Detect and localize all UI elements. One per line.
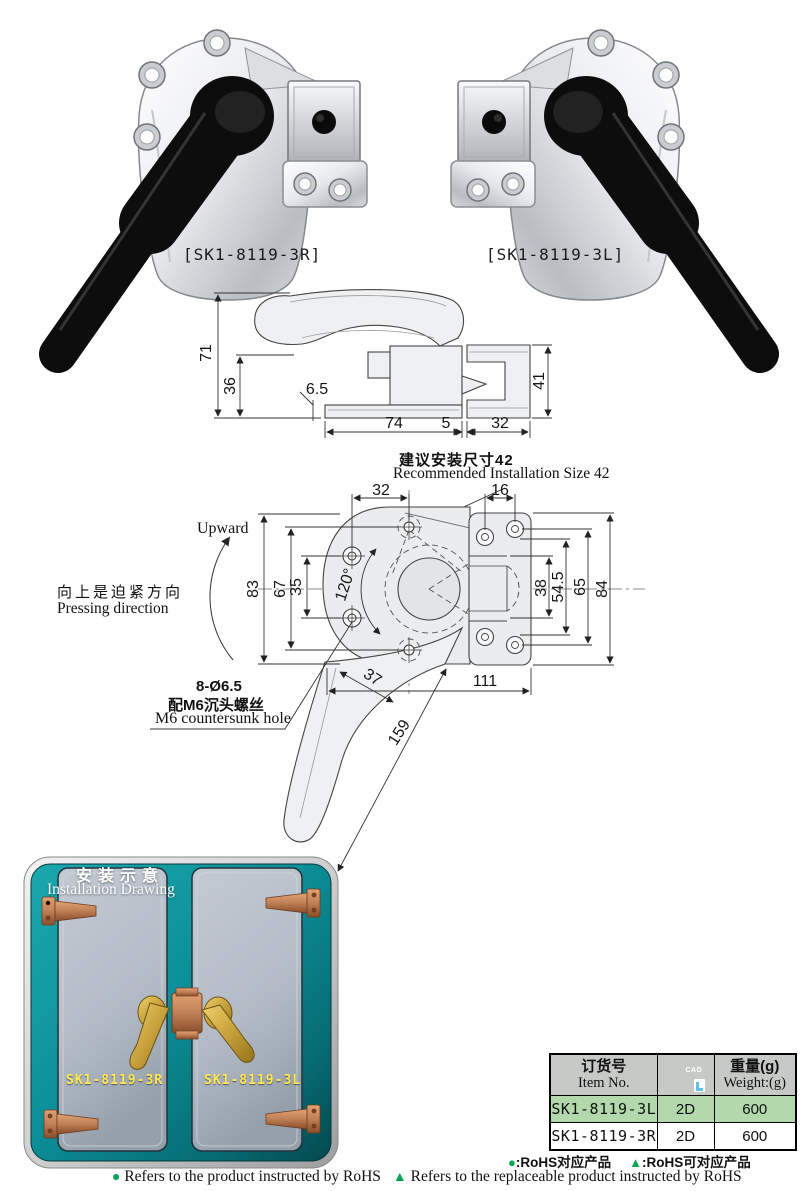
weight-cell: 600 bbox=[714, 1096, 796, 1123]
spec-table: 订货号 Item No. CAD 重量(g) Weight:(g) SK1-81… bbox=[549, 1053, 797, 1151]
rohs-triangle-icon: ▲ bbox=[393, 1170, 407, 1185]
hole-spec-label: 8-Ø6.5 bbox=[196, 678, 242, 695]
col-header-cad: CAD bbox=[657, 1054, 714, 1096]
rohs-dot-text-en: Refers to the product instructed by RoHS bbox=[124, 1168, 381, 1185]
pressing-direction-zh: 向上是迫紧方向 bbox=[57, 581, 183, 602]
upward-arc-arrow bbox=[195, 528, 265, 668]
installation-drawing bbox=[22, 855, 340, 1170]
model-label-left-hand: [SK1-8119-3L] bbox=[486, 245, 624, 264]
dim-side-base-height: 36 bbox=[223, 377, 239, 395]
rohs-dot-icon: ● bbox=[112, 1170, 120, 1185]
weight-header-en: Weight:(g) bbox=[715, 1076, 796, 1092]
dim-front-left-mid: 67 bbox=[273, 580, 289, 598]
pressing-direction-en: Pressing direction bbox=[57, 600, 169, 618]
spec-table-header-row: 订货号 Item No. CAD 重量(g) Weight:(g) bbox=[550, 1054, 796, 1096]
dim-front-right-mid: 54.5 bbox=[551, 571, 567, 602]
dim-front-left-inner: 35 bbox=[289, 578, 305, 596]
item-no-cell: SK1-8119-3L bbox=[550, 1096, 657, 1123]
item-no-header-zh: 订货号 bbox=[551, 1058, 657, 1075]
dim-front-right-outer: 84 bbox=[595, 580, 611, 598]
table-row: SK1-8119-3L 2D 600 bbox=[550, 1096, 796, 1123]
table-row: SK1-8119-3R 2D 600 bbox=[550, 1123, 796, 1151]
dim-side-offset: 6.5 bbox=[306, 382, 328, 398]
dim-front-right-mid2: 65 bbox=[573, 578, 589, 596]
dim-front-bottom: 111 bbox=[473, 674, 497, 690]
weight-header-zh: 重量(g) bbox=[715, 1058, 796, 1075]
hole-spec-en: M6 countersunk hole bbox=[155, 710, 291, 728]
cad-document-glyph bbox=[694, 1079, 705, 1092]
door-label-left-hand: SK1-8119-3L bbox=[204, 1073, 301, 1088]
latch-button bbox=[312, 110, 336, 134]
installation-title-en: Installation Drawing bbox=[47, 881, 175, 899]
weight-cell: 600 bbox=[714, 1123, 796, 1151]
dim-side-keeper-width: 32 bbox=[491, 416, 509, 432]
dim-front-right-inner: 38 bbox=[534, 579, 550, 597]
datasheet-page: [SK1-8119-3R] [SK1-8119-3L] bbox=[0, 0, 800, 1191]
rohs-tri-text-en: Refers to the replaceable product instru… bbox=[411, 1168, 742, 1185]
model-label-right-hand: [SK1-8119-3R] bbox=[183, 245, 321, 264]
col-header-weight: 重量(g) Weight:(g) bbox=[714, 1054, 796, 1096]
dim-side-base-width: 74 bbox=[385, 416, 403, 432]
item-no-cell: SK1-8119-3R bbox=[550, 1123, 657, 1151]
dim-side-keeper-height: 41 bbox=[532, 372, 548, 390]
cad-cell[interactable]: 2D bbox=[657, 1096, 714, 1123]
col-header-item-no: 订货号 Item No. bbox=[550, 1054, 657, 1096]
rohs-legend-en: ● Refers to the product instructed by Ro… bbox=[112, 1168, 742, 1186]
dim-front-top-left: 32 bbox=[372, 483, 390, 499]
dim-front-top-right: 16 bbox=[491, 483, 509, 499]
item-no-header-en: Item No. bbox=[551, 1076, 657, 1092]
door-label-right-hand: SK1-8119-3R bbox=[66, 1073, 163, 1088]
dim-side-gap: 5 bbox=[442, 416, 451, 432]
cad-cell[interactable]: 2D bbox=[657, 1123, 714, 1151]
dim-side-total-height: 71 bbox=[199, 344, 215, 362]
